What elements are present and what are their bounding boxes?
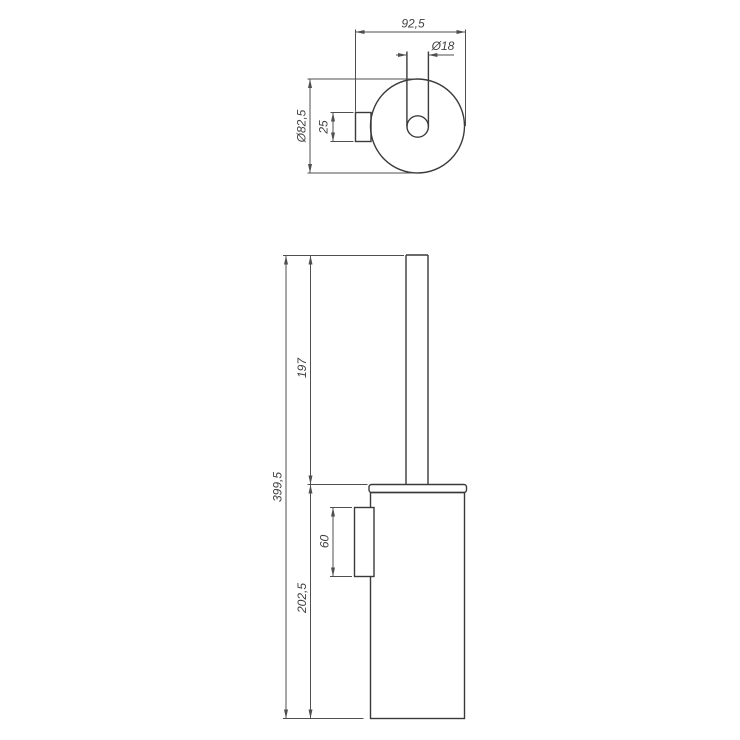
dim-label-bracket-height: 60 [318, 535, 332, 549]
wall-bracket-top [356, 113, 372, 142]
dim-label-container-height: 202,5 [295, 583, 309, 614]
wall-bracket-front [355, 508, 375, 577]
dim-label-total-height: 399,5 [271, 472, 285, 502]
handle-rod-section [407, 116, 428, 137]
front-view: 399,5 197 202,5 60 [271, 255, 467, 719]
drawing-sheet: 92,5 Ø18 Ø82,5 25 399,5 197 202,5 [0, 0, 740, 740]
dim-label-overall-depth: 92,5 [401, 17, 425, 31]
technical-drawing: 92,5 Ø18 Ø82,5 25 399,5 197 202,5 [0, 0, 740, 740]
dim-label-container-diameter: Ø82,5 [295, 109, 309, 143]
dim-label-handle-height: 197 [295, 357, 309, 378]
container-outline-top [371, 79, 465, 173]
container-lid-front [369, 485, 467, 493]
container-body-front [371, 493, 465, 719]
dim-label-bracket-depth: 25 [317, 120, 331, 135]
top-view: 92,5 Ø18 Ø82,5 25 [295, 17, 466, 174]
dim-label-handle-diameter: Ø18 [431, 39, 455, 53]
